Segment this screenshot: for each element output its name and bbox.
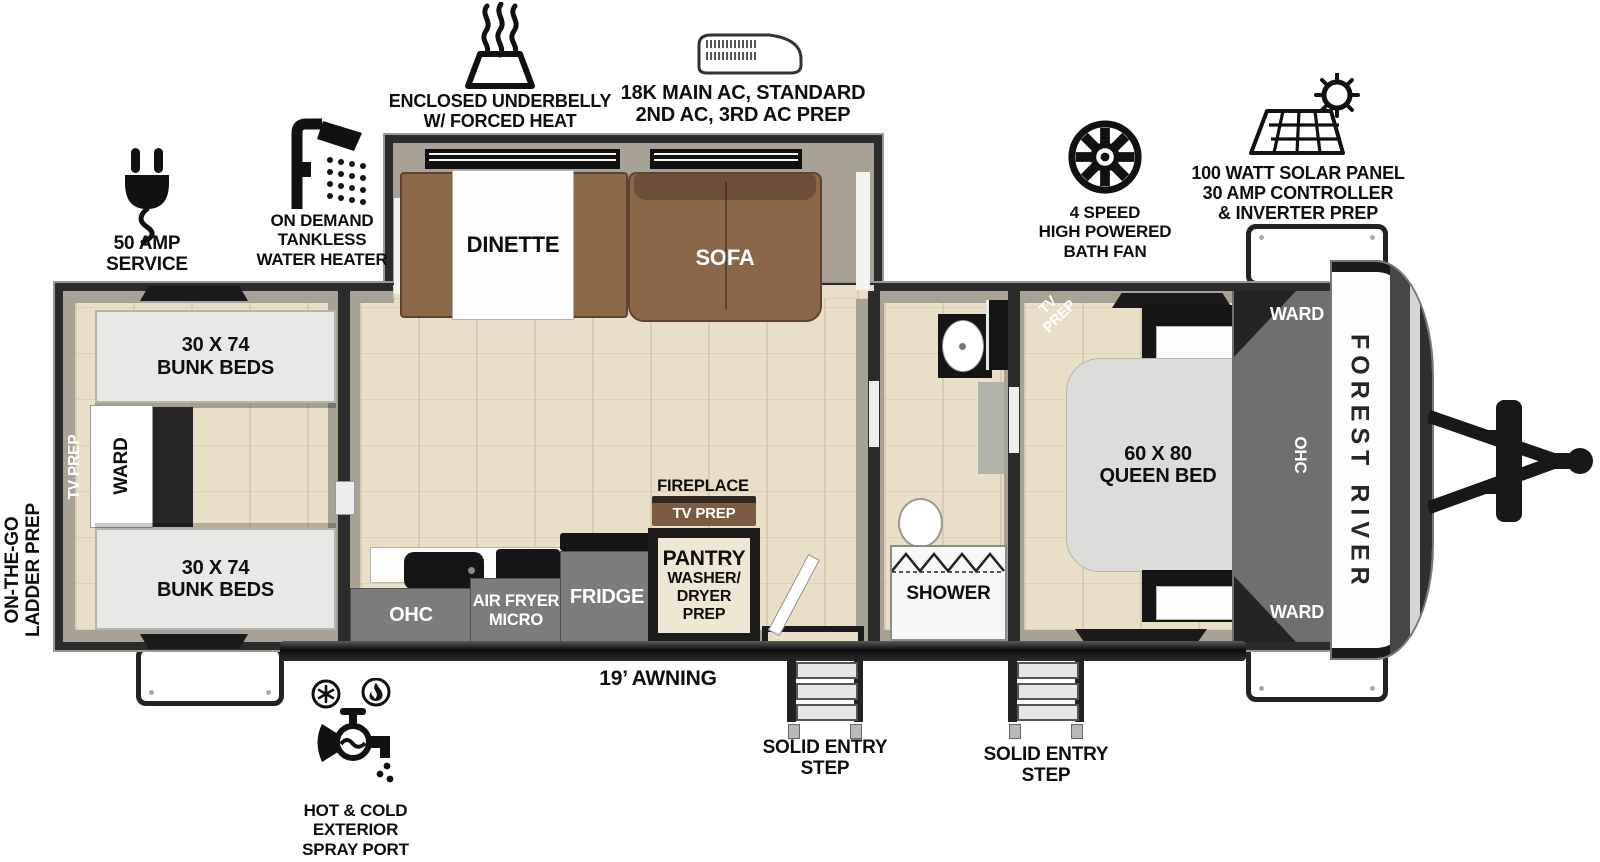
- nightstand-bottom-surface: [1156, 586, 1242, 620]
- bunk-tv-prep-label: TV PREP: [64, 412, 86, 522]
- slide-window-right: [650, 149, 802, 169]
- bunk-bed-bottom: 30 X 74 BUNK BEDS: [95, 528, 336, 630]
- dinette-bench-right: [570, 172, 628, 318]
- shower-label: SHOWER: [892, 581, 1005, 607]
- entry-step-2: [1008, 658, 1084, 730]
- front-cap: FOREST RIVER: [1330, 260, 1434, 660]
- wall-stub: [348, 291, 394, 303]
- dinette-table: DINETTE: [452, 170, 574, 320]
- awning-bar: [280, 641, 1246, 661]
- sofa: SOFA: [628, 172, 822, 322]
- forced-heat-icon: [452, 2, 548, 90]
- dinette-bench-left: [400, 172, 458, 318]
- wall-bunk-living: [338, 291, 350, 642]
- bunk-ladder-area: [153, 407, 193, 527]
- toilet: [898, 498, 943, 548]
- bath-fan-label: 4 SPEED HIGH POWERED BATH FAN: [1030, 203, 1180, 261]
- bath-fan-icon: [1066, 118, 1144, 196]
- pantry-title: PANTRY: [663, 547, 746, 571]
- entry-step-2-label: SOLID ENTRY STEP: [971, 743, 1121, 787]
- front-cabinet-strip: [1232, 291, 1332, 642]
- wall-bath-bedroom: [1008, 291, 1020, 642]
- main-ac-label: 18K MAIN AC, STANDARD 2ND AC, 3RD AC PRE…: [607, 80, 879, 128]
- ac-unit-icon: [693, 27, 807, 75]
- bath-door: [869, 381, 879, 447]
- brand-logo: FOREST RIVER: [1336, 278, 1382, 646]
- awning-label: 19’ AWNING: [588, 666, 728, 692]
- bath-sink-drain: [959, 343, 966, 350]
- fridge: FRIDGE: [560, 551, 654, 643]
- shower: SHOWER: [890, 545, 1007, 641]
- front-ward-bottom-label: WARD: [1262, 600, 1332, 624]
- ladder-prep-label: ON-THE-GO LADDER PREP: [0, 500, 46, 640]
- underbelly-label: ENCLOSED UNDERBELLY W/ FORCED HEAT: [385, 92, 615, 130]
- air-fryer-micro: AIR FRYER MICRO: [470, 578, 562, 643]
- cap-stripe-dark: [1390, 262, 1410, 658]
- bunk-door: [335, 481, 355, 515]
- solar-panel-icon: [1243, 73, 1365, 161]
- rv-floorplan: 30 X 74 BUNK BEDS WARD 30 X 74 BUNK BEDS…: [0, 0, 1600, 862]
- hitch-icon: [1428, 398, 1593, 526]
- power-plug-icon: [116, 148, 178, 244]
- fridge-counter: [560, 533, 654, 551]
- slide-window-left: [425, 149, 620, 169]
- cap-stripe-light: [1410, 262, 1420, 658]
- entry-step-1: [787, 658, 863, 730]
- queen-bed: 60 X 80 QUEEN BED: [1066, 358, 1250, 572]
- pantry-washer-dryer: PANTRY WASHER/ DRYER PREP: [648, 528, 760, 643]
- bunk-room-window-top: [140, 286, 248, 301]
- fireplace-tv-prep: TV PREP: [652, 496, 756, 526]
- pantry-sub: WASHER/ DRYER PREP: [658, 570, 750, 624]
- bunk-room-window-bottom: [140, 634, 248, 649]
- solar-label: 100 WATT SOLAR PANEL 30 AMP CONTROLLER &…: [1175, 162, 1421, 224]
- water-heater-label: ON DEMAND TANKLESS WATER HEATER: [252, 210, 392, 270]
- fireplace-label: FIREPLACE: [640, 478, 766, 495]
- nightstand-top-surface: [1156, 326, 1242, 360]
- front-ward-top-label: WARD: [1262, 302, 1332, 326]
- kitchen-ohc: OHC: [350, 588, 472, 643]
- bath-shelf: [978, 382, 1004, 474]
- bunk-wardrobe-label: WARD: [110, 406, 134, 526]
- spray-port-label: HOT & COLD EXTERIOR SPRAY PORT: [263, 808, 448, 852]
- bunk-bed-top: 30 X 74 BUNK BEDS: [95, 310, 336, 403]
- amp-service-label: 50 AMP SERVICE: [72, 242, 222, 266]
- slide-end-panel-right: [856, 172, 870, 290]
- tankless-water-heater-icon: [286, 118, 370, 210]
- rear-storage-door: [136, 646, 284, 706]
- wall-living-bath: [868, 291, 880, 642]
- shower-door-icon: [892, 549, 1005, 575]
- bedroom-door: [1009, 387, 1019, 453]
- spray-port-icon: [300, 678, 410, 786]
- front-ohc-label: OHC: [1287, 421, 1313, 489]
- entry-step-1-label: SOLID ENTRY STEP: [750, 736, 900, 780]
